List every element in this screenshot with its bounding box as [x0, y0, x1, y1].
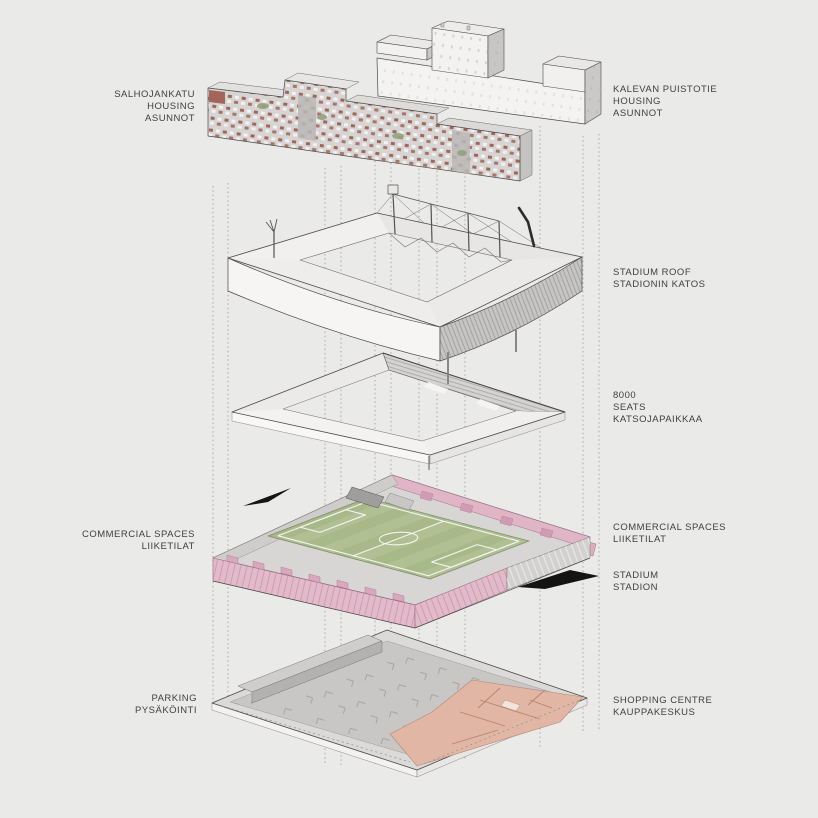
exploded-axonometric-diagram: SALHOJANKATU HOUSING ASUNNOT KALEVAN PUI…: [0, 0, 818, 818]
label-stadium-roof: STADIUM ROOF STADIONIN KATOS: [613, 267, 706, 291]
label-salhojankatu-housing: SALHOJANKATU HOUSING ASUNNOT: [114, 89, 195, 125]
stadium-roof-layer-illustration: [228, 185, 582, 384]
seating-bowl-layer-illustration: [232, 353, 565, 470]
label-commercial-spaces-left: COMMERCIAL SPACES LIIKETILAT: [82, 529, 195, 553]
label-commercial-spaces-right: COMMERCIAL SPACES LIIKETILAT: [613, 522, 726, 546]
entry-arrow-left: [243, 488, 291, 506]
label-stadium: STADIUM STADION: [613, 570, 659, 594]
housing-layer-illustration: [208, 21, 601, 181]
parking-shopping-layer-illustration: [212, 630, 587, 777]
label-shopping-centre: SHOPPING CENTRE KAUPPAKESKUS: [613, 695, 712, 719]
stadium-layer-illustration: [213, 475, 599, 628]
label-parking: PARKING PYSÄKÖINTI: [135, 693, 197, 717]
label-8000-seats: 8000 SEATS KATSOJAPAIKKAA: [613, 390, 703, 426]
floodlight-right: [519, 208, 534, 246]
label-kalevan-puistotie-housing: KALEVAN PUISTOTIE HOUSING ASUNNOT: [613, 84, 717, 120]
